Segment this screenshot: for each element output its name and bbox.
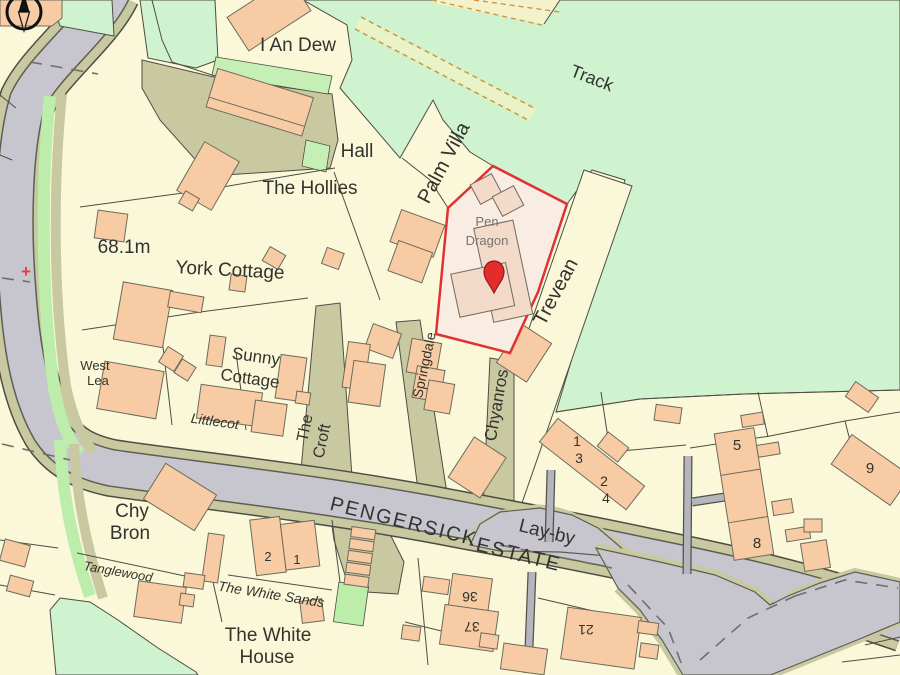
number-estate-5: 5 — [733, 437, 741, 454]
green-strip-hall-east — [302, 140, 330, 172]
number-terrace-3: 3 — [575, 450, 583, 466]
label-chy-bron-1: Chy — [115, 501, 149, 522]
number-21: 21 — [578, 622, 594, 638]
number-white-sands-2: 2 — [264, 549, 271, 564]
number-estate-9: 9 — [866, 460, 874, 477]
number-37: 37 — [464, 619, 480, 635]
label-west-lea-1: West — [80, 358, 110, 373]
label-spot-height: 68.1m — [98, 237, 151, 258]
number-terrace-4: 4 — [602, 490, 610, 506]
benchmark-cross: + — [21, 262, 31, 281]
number-terrace-1: 1 — [573, 433, 581, 449]
green-patch-white-sands — [333, 582, 368, 626]
label-pen-dragon-1: Pen — [475, 214, 498, 229]
number-36: 36 — [462, 589, 478, 605]
map-canvas[interactable]: I An Dew Hall The Hollies Palm Villa Tra… — [0, 0, 900, 675]
number-terrace-2: 2 — [600, 473, 608, 489]
label-west-lea-2: Lea — [87, 373, 109, 388]
number-white-sands-1: 1 — [293, 552, 300, 567]
label-the-white-house-1: The White — [225, 625, 312, 646]
label-pen-dragon-2: Dragon — [466, 233, 509, 248]
green-patch-top-left-b — [140, 0, 218, 68]
number-estate-8: 8 — [753, 535, 761, 552]
label-i-an-dew: I An Dew — [260, 35, 336, 56]
label-chy-bron-2: Bron — [110, 523, 150, 544]
label-hall: Hall — [341, 141, 374, 162]
label-the-hollies: The Hollies — [262, 178, 357, 199]
label-the-white-house-2: House — [240, 647, 295, 668]
